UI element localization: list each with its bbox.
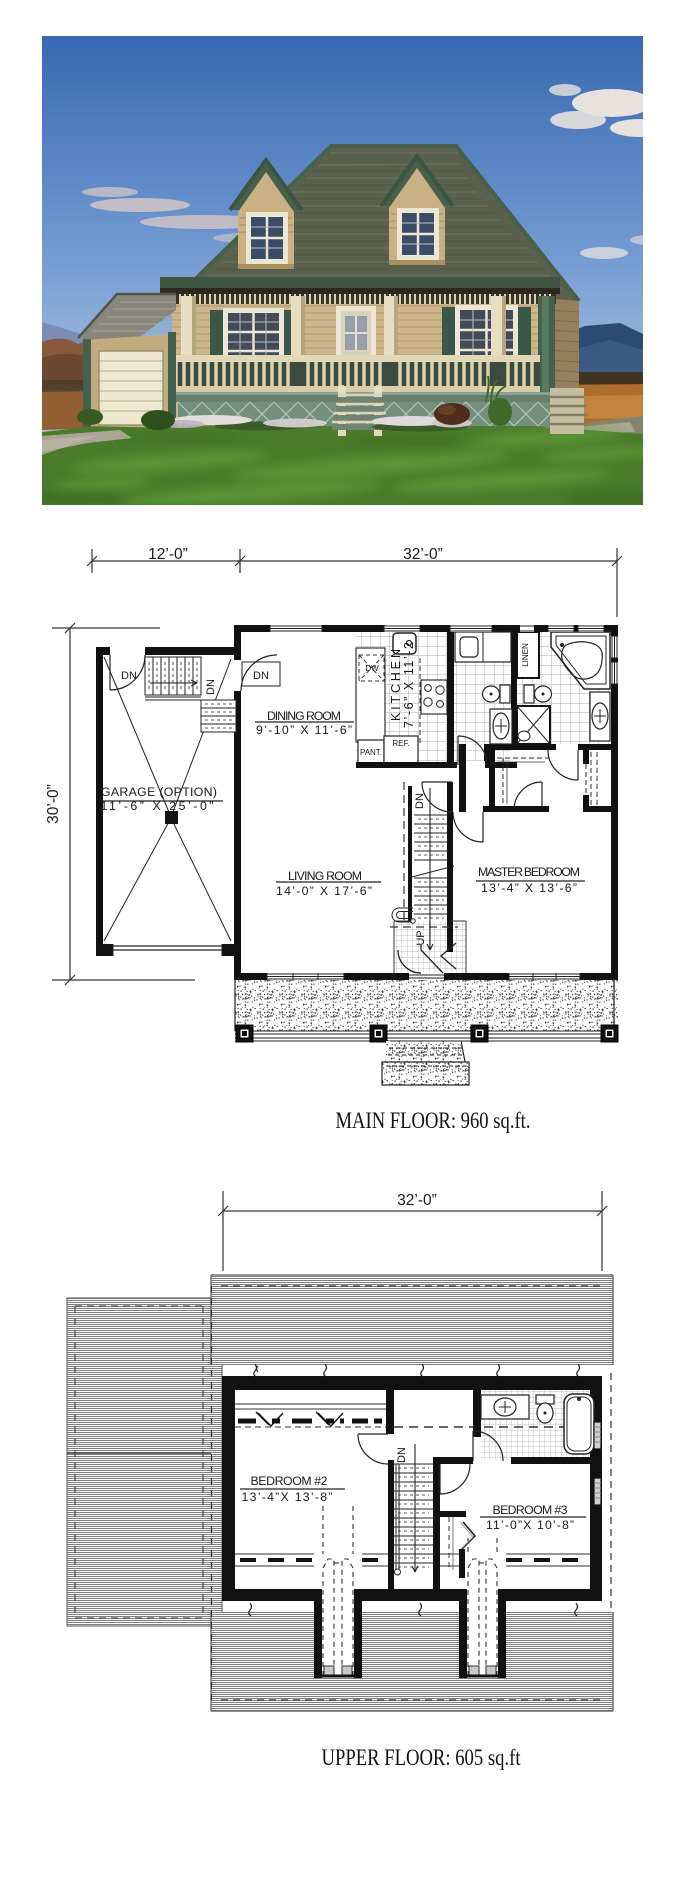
svg-text:UP: UP (415, 930, 427, 945)
svg-text:12’-0”: 12’-0” (148, 546, 188, 563)
svg-text:MAIN FLOOR: 960 sq.ft.: MAIN FLOOR: 960 sq.ft. (336, 1108, 531, 1133)
svg-text:DN: DN (414, 793, 426, 809)
svg-text:PANT.: PANT. (360, 748, 382, 757)
svg-text:DN: DN (396, 1447, 408, 1463)
svg-text:11’-0”X 10’-8”: 11’-0”X 10’-8” (486, 1518, 574, 1532)
svg-text:30’-0”: 30’-0” (45, 784, 62, 824)
svg-text:DN: DN (205, 679, 217, 695)
svg-text:LINEN: LINEN (521, 643, 530, 667)
svg-text:LIVING ROOM: LIVING ROOM (288, 869, 362, 883)
svg-text:13’-4”X 13’-8”: 13’-4”X 13’-8” (242, 1490, 333, 1504)
svg-text:DINING ROOM: DINING ROOM (267, 709, 341, 723)
svg-text:DW: DW (365, 664, 379, 673)
svg-text:14’-0” X 17’-6”: 14’-0” X 17’-6” (276, 884, 372, 898)
svg-text:7’-6” X 11’-2: 7’-6” X 11’-2 (402, 642, 416, 728)
svg-text:DN: DN (121, 670, 137, 682)
svg-text:9’-10” X 11’-6”: 9’-10” X 11’-6” (256, 723, 352, 737)
svg-text:32’-0”: 32’-0” (397, 1192, 437, 1209)
svg-text:DN: DN (253, 670, 269, 682)
svg-text:BEDROOM #2: BEDROOM #2 (251, 1474, 328, 1488)
svg-text:BEDROOM #3: BEDROOM #3 (493, 1503, 568, 1517)
svg-text:13’-4” X 13’-6”: 13’-4” X 13’-6” (481, 881, 577, 895)
svg-text:MASTER BEDROOM: MASTER BEDROOM (478, 865, 580, 879)
svg-text:UPPER FLOOR: 605 sq.ft: UPPER FLOOR: 605 sq.ft (322, 1745, 521, 1770)
svg-text:REF.: REF. (392, 739, 409, 748)
svg-text:GARAGE (OPTION): GARAGE (OPTION) (101, 785, 217, 799)
svg-text:32’-0”: 32’-0” (403, 546, 443, 563)
